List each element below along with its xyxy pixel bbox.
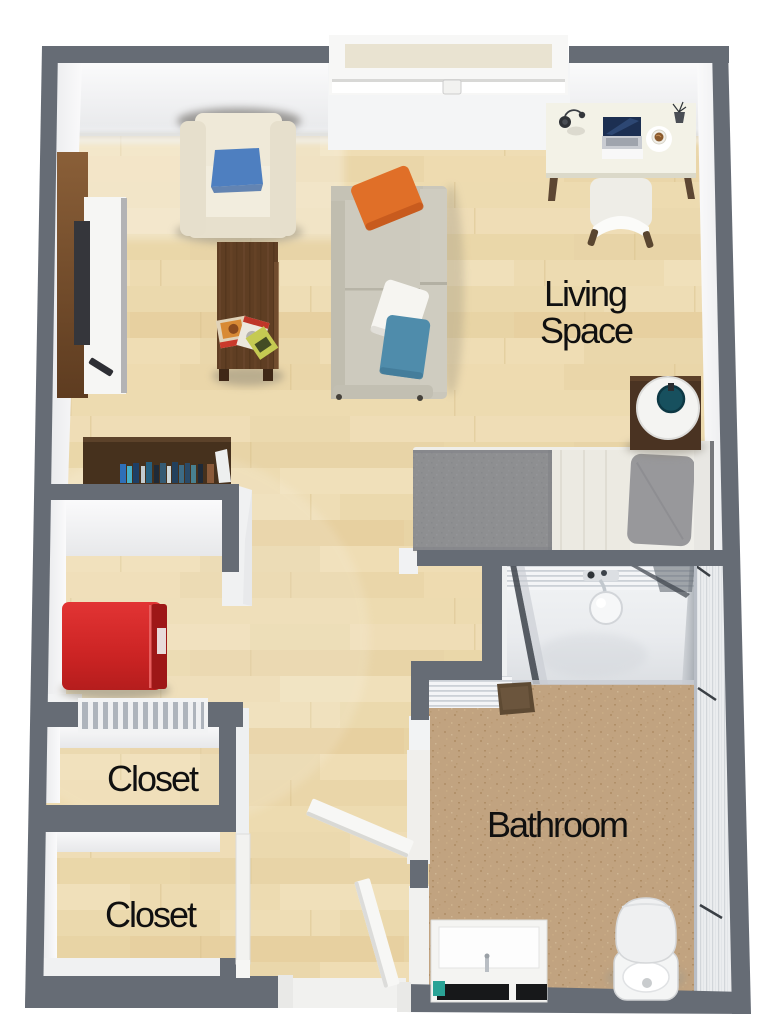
svg-text:Closet: Closet [105, 894, 197, 935]
svg-text:Space: Space [540, 310, 633, 351]
svg-text:Bathroom: Bathroom [487, 804, 627, 845]
svg-text:Closet: Closet [107, 758, 199, 799]
svg-text:Living: Living [544, 273, 626, 314]
